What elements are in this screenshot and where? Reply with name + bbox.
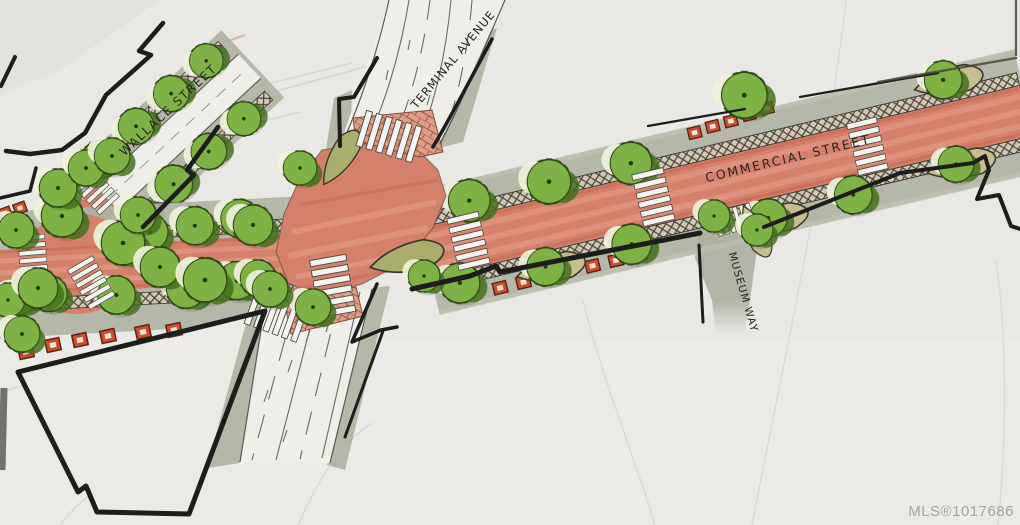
bench	[687, 126, 702, 140]
streetscape-plan-photo: COMMERCIAL STREET	[0, 0, 1020, 525]
bench	[45, 337, 62, 352]
paper-edge-shadow	[2, 388, 4, 470]
bench	[100, 328, 117, 343]
bench	[585, 259, 601, 274]
bench	[72, 332, 89, 347]
streetscape-plan-svg: COMMERCIAL STREET	[0, 0, 1020, 525]
bench	[492, 281, 508, 296]
bench	[705, 119, 720, 133]
mls-watermark: MLS®1017686	[908, 503, 1014, 520]
